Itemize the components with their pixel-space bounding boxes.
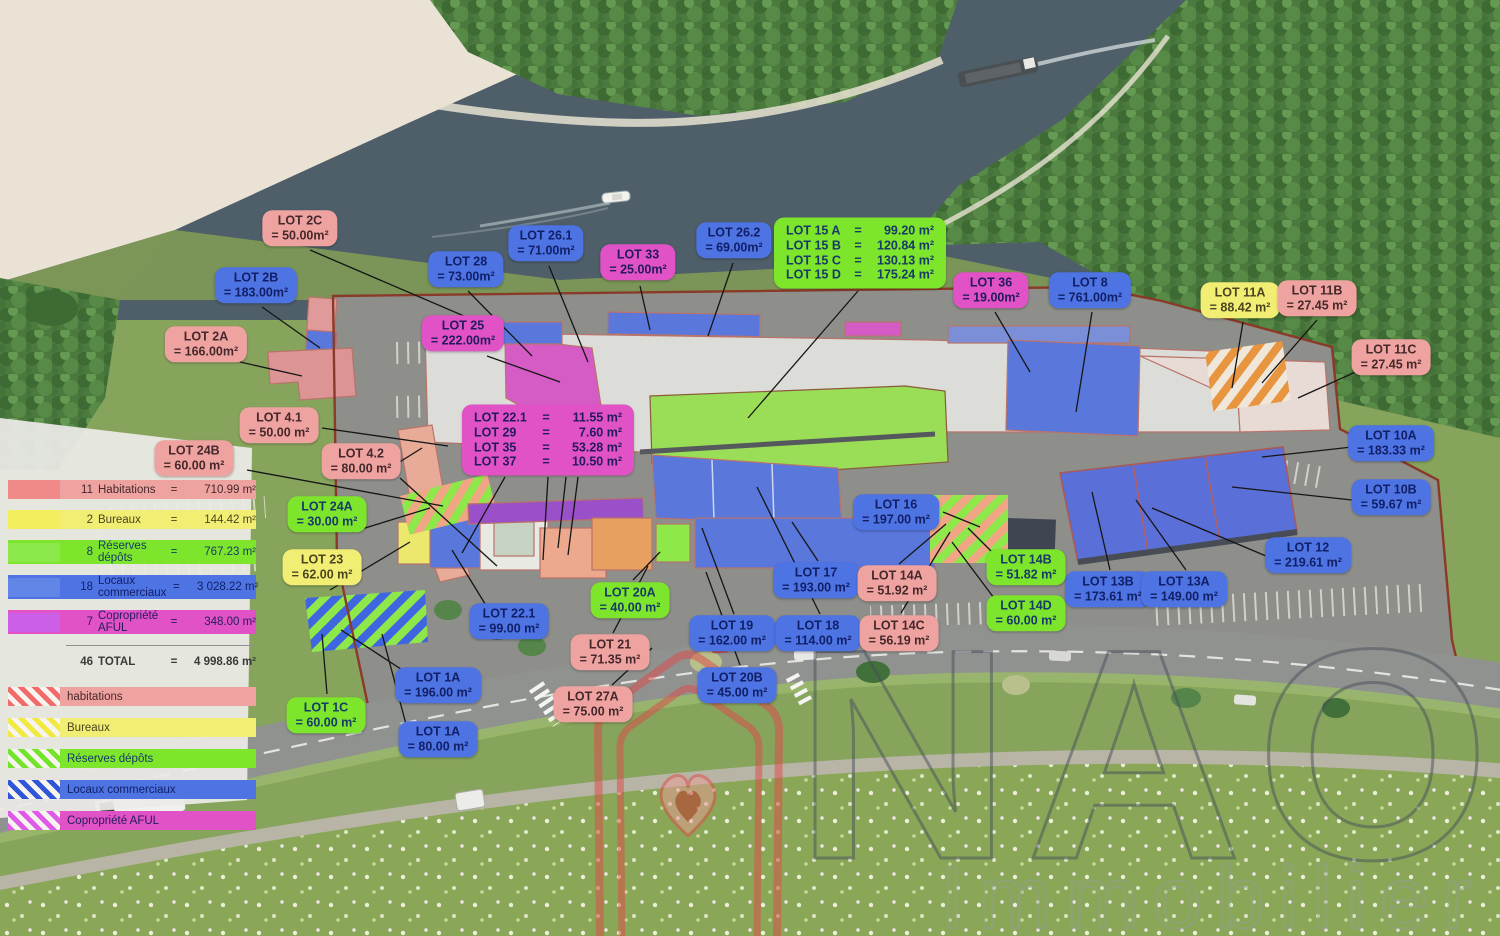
- lot-area: = 75.00 m²: [563, 704, 624, 719]
- lot-area: = 25.00m²: [609, 262, 666, 277]
- legend-row: 8 Réserves dépôts = 767.23 m²: [8, 540, 256, 564]
- lot-label-14a: LOT 14A = 51.92 m²: [858, 565, 937, 601]
- lot-name: LOT 13B: [1074, 574, 1142, 589]
- legend-label: Locaux commerciaux: [98, 575, 166, 599]
- lot-area: = 173.61 m²: [1074, 589, 1142, 604]
- lot-area: = 196.00 m²: [404, 685, 472, 700]
- lot-area: = 73.00m²: [437, 269, 494, 284]
- legend-label: Habitations: [98, 484, 164, 496]
- lot-label-36: LOT 36 = 19.00m²: [953, 272, 1028, 308]
- lot-label-20b: LOT 20B = 45.00 m²: [698, 667, 777, 703]
- lot-area: = 30.00 m²: [297, 514, 358, 529]
- legend-count: 8: [67, 546, 93, 558]
- lot-area: = 27.45 m²: [1361, 357, 1422, 372]
- legend-equals: =: [169, 546, 179, 558]
- lot-15c-row: LOT 15 C=130.13 m²: [786, 253, 934, 268]
- lot-area: = 114.00 m²: [784, 633, 851, 648]
- lot-label-11c: LOT 11C = 27.45 m²: [1352, 339, 1431, 375]
- lot-area: = 222.00m²: [431, 333, 495, 348]
- lot-name: LOT 14B: [996, 552, 1057, 567]
- legend-row: 7 Copropriété AFUL = 348.00 m²: [8, 610, 256, 634]
- lot-label-12: LOT 12 = 219.61 m²: [1265, 537, 1351, 573]
- legend-color-swatch: [8, 543, 60, 562]
- lot-label-4-2: LOT 4.2 = 80.00 m²: [322, 443, 401, 479]
- lot-15a-row: LOT 15 A=99.20 m²: [786, 224, 934, 239]
- lot-15d-row: LOT 15 D=175.24 m²: [786, 268, 934, 283]
- lot-label-8: LOT 8 = 761.00m²: [1049, 272, 1131, 308]
- site-plan-page: NAOS Immobilier 11 Habitat: [0, 0, 1500, 936]
- lot-15b-row: LOT 15 B=120.84 m²: [786, 238, 934, 253]
- lot-area: = 62.00 m²: [292, 567, 353, 582]
- lot-name: LOT 2B: [224, 270, 288, 285]
- lot-name: LOT 13A: [1150, 574, 1218, 589]
- lot-name: LOT 1A: [408, 724, 469, 739]
- lot-name: LOT 26.2: [705, 225, 762, 240]
- lot-22-row: LOT 22.1=11.55 m²: [474, 411, 622, 426]
- legend-hatch-swatch: [8, 749, 60, 768]
- legend-hatch-label: Réserves dépôts: [67, 753, 256, 765]
- lot-area: = 71.00m²: [517, 243, 574, 258]
- lot-name: LOT 14C: [869, 618, 930, 633]
- lot-area: = 149.00 m²: [1150, 589, 1218, 604]
- lot-label-16: LOT 16 = 197.00 m²: [853, 494, 939, 530]
- lot-label-21: LOT 21 = 71.35 m²: [571, 634, 650, 670]
- legend-panel: 11 Habitations = 710.99 m² 2 Bureaux = 1…: [8, 480, 256, 842]
- legend-equals: =: [169, 514, 179, 526]
- lot-29-row: LOT 29=7.60 m²: [474, 425, 622, 440]
- lot-label-23: LOT 23 = 62.00 m²: [283, 549, 362, 585]
- lot-label-26-1: LOT 26.1 = 71.00m²: [508, 225, 583, 261]
- lot-name: LOT 20A: [600, 585, 661, 600]
- lot-area: = 51.82 m²: [996, 567, 1057, 582]
- lot-label-18: LOT 18 = 114.00 m²: [775, 615, 860, 651]
- lot-area: = 51.92 m²: [867, 583, 928, 598]
- legend-count: 7: [67, 616, 93, 628]
- lot-name: LOT 26.1: [517, 228, 574, 243]
- lot-35-row: LOT 35=53.28 m²: [474, 440, 622, 455]
- legend-hatch-swatch: [8, 687, 60, 706]
- lot-area: = 88.42 m²: [1210, 300, 1271, 315]
- legend-hatch-row: Copropriété AFUL: [8, 811, 256, 830]
- lot-label-2a: LOT 2A = 166.00m²: [165, 326, 247, 362]
- lot-area: = 27.45 m²: [1287, 298, 1348, 313]
- lot-label-2b: LOT 2B = 183.00m²: [215, 267, 297, 303]
- legend-value: 348.00 m²: [184, 616, 256, 628]
- lot-name: LOT 14A: [867, 568, 928, 583]
- lot-label-4-1: LOT 4.1 = 50.00 m²: [240, 407, 319, 443]
- legend-color-swatch: [8, 480, 60, 499]
- legend-hatch-list: habitations Bureaux Réserves dépôts Loca…: [8, 687, 256, 830]
- lot-label-20a: LOT 20A = 40.00 m²: [591, 582, 670, 618]
- legend-hatch-label: Copropriété AFUL: [67, 815, 256, 827]
- legend-value: 710.99 m²: [184, 484, 256, 496]
- lot-name: LOT 27A: [563, 689, 624, 704]
- legend-hatch-label: Bureaux: [67, 722, 256, 734]
- lot-label-14c: LOT 14C = 56.19 m²: [860, 615, 939, 651]
- lot-name: LOT 2C: [271, 213, 328, 228]
- lot-area: = 59.67 m²: [1361, 497, 1422, 512]
- lot-area: = 60.00 m²: [296, 715, 357, 730]
- lot-name: LOT 8: [1058, 275, 1122, 290]
- lot-name: LOT 1C: [296, 700, 357, 715]
- lot-area: = 162.00 m²: [698, 633, 766, 648]
- lot-name: LOT 10B: [1361, 482, 1422, 497]
- legend-label: Copropriété AFUL: [98, 610, 164, 634]
- lot-name: LOT 18: [784, 618, 851, 633]
- lot-label-11b: LOT 11B = 27.45 m²: [1278, 280, 1357, 316]
- lot-name: LOT 24A: [297, 499, 358, 514]
- lot-label-10a: LOT 10A = 183.33 m²: [1348, 425, 1434, 461]
- legend-label: Réserves dépôts: [98, 540, 164, 564]
- legend-separator: [66, 645, 256, 646]
- lot-name: LOT 19: [698, 618, 766, 633]
- legend-count: 18: [67, 581, 93, 593]
- lot-area: = 99.00 m²: [479, 621, 540, 636]
- legend-total-value: 4 998.86 m²: [184, 656, 256, 668]
- lot-area: = 60.00 m²: [164, 458, 225, 473]
- legend-value: 144.42 m²: [184, 514, 256, 526]
- legend-count: 2: [67, 514, 93, 526]
- lot-name: LOT 11A: [1210, 285, 1271, 300]
- legend-value: 3 028.22 m²: [186, 581, 258, 593]
- lot-area: = 45.00 m²: [707, 685, 768, 700]
- legend-row: 2 Bureaux = 144.42 m²: [8, 510, 256, 529]
- legend-hatch-row: Locaux commerciaux: [8, 780, 256, 799]
- label-lot-22-group: LOT 22.1=11.55 m² LOT 29=7.60 m² LOT 35=…: [462, 405, 634, 476]
- lot-name: LOT 25: [431, 318, 495, 333]
- lot-area: = 183.33 m²: [1357, 443, 1425, 458]
- lot-label-24b: LOT 24B = 60.00 m²: [155, 440, 234, 476]
- lot-label-14b: LOT 14B = 51.82 m²: [987, 549, 1066, 585]
- legend-hatch-swatch: [8, 718, 60, 737]
- legend-category-list: 11 Habitations = 710.99 m² 2 Bureaux = 1…: [8, 480, 256, 634]
- lot-area: = 71.35 m²: [580, 652, 641, 667]
- legend-hatch-label: Locaux commerciaux: [67, 784, 256, 796]
- lot-label-11a: LOT 11A = 88.42 m²: [1201, 282, 1280, 318]
- lot-area: = 40.00 m²: [600, 600, 661, 615]
- lot-name: LOT 24B: [164, 443, 225, 458]
- lot-area: = 60.00 m²: [996, 613, 1057, 628]
- legend-hatch-row: Bureaux: [8, 718, 256, 737]
- legend-color-swatch: [8, 613, 60, 632]
- lot-area: = 761.00m²: [1058, 290, 1122, 305]
- lot-name: LOT 11C: [1361, 342, 1422, 357]
- lot-name: LOT 17: [782, 565, 850, 580]
- lot-label-25: LOT 25 = 222.00m²: [422, 315, 504, 351]
- legend-total-count: 46: [67, 656, 93, 668]
- lot-label-33: LOT 33 = 25.00m²: [600, 244, 675, 280]
- legend-row: 11 Habitations = 710.99 m²: [8, 480, 256, 499]
- lot-label-1a-80: LOT 1A = 80.00 m²: [399, 721, 478, 757]
- legend-hatch-row: habitations: [8, 687, 256, 706]
- legend-equals: =: [169, 484, 179, 496]
- lot-name: LOT 11B: [1287, 283, 1348, 298]
- lot-label-24a: LOT 24A = 30.00 m²: [288, 496, 367, 532]
- legend-row: 18 Locaux commerciaux = 3 028.22 m²: [8, 575, 256, 599]
- lot-name: LOT 16: [862, 497, 930, 512]
- lot-area: = 69.00m²: [705, 240, 762, 255]
- label-lot-15-group: LOT 15 A=99.20 m² LOT 15 B=120.84 m² LOT…: [774, 218, 946, 289]
- legend-hatch-row: Réserves dépôts: [8, 749, 256, 768]
- legend-hatch-label: habitations: [67, 691, 256, 703]
- lot-name: LOT 20B: [707, 670, 768, 685]
- legend-color-swatch: [8, 578, 60, 597]
- lot-area: = 50.00 m²: [249, 425, 310, 440]
- lot-area: = 183.00m²: [224, 285, 288, 300]
- lot-name: LOT 28: [437, 254, 494, 269]
- lot-label-26-2: LOT 26.2 = 69.00m²: [696, 222, 771, 258]
- lot-area: = 80.00 m²: [331, 461, 392, 476]
- lot-area: = 219.61 m²: [1274, 555, 1342, 570]
- lot-label-10b: LOT 10B = 59.67 m²: [1352, 479, 1431, 515]
- legend-total-equals: =: [169, 656, 179, 668]
- legend-total-label: TOTAL: [98, 656, 164, 668]
- lot-name: LOT 1A: [404, 670, 472, 685]
- legend-label: Bureaux: [98, 514, 164, 526]
- lot-name: LOT 4.2: [331, 446, 392, 461]
- lot-name: LOT 33: [609, 247, 666, 262]
- legend-value: 767.23 m²: [184, 546, 256, 558]
- legend-equals: =: [169, 616, 179, 628]
- lot-name: LOT 21: [580, 637, 641, 652]
- lot-area: = 56.19 m²: [869, 633, 930, 648]
- legend-color-swatch: [8, 510, 60, 529]
- lot-area: = 193.00 m²: [782, 580, 850, 595]
- legend-hatch-swatch: [8, 780, 60, 799]
- lot-name: LOT 4.1: [249, 410, 310, 425]
- lot-label-19: LOT 19 = 162.00 m²: [689, 615, 775, 651]
- watermark-subtitle: Immobilier: [940, 848, 1486, 936]
- lot-label-17: LOT 17 = 193.00 m²: [773, 562, 859, 598]
- lot-label-13b: LOT 13B = 173.61 m²: [1065, 571, 1151, 607]
- lot-label-27a: LOT 27A = 75.00 m²: [554, 686, 633, 722]
- legend-equals: =: [171, 581, 181, 593]
- legend-count: 11: [67, 484, 93, 496]
- lot-label-1a-196: LOT 1A = 196.00 m²: [395, 667, 481, 703]
- lot-area: = 197.00 m²: [862, 512, 930, 527]
- lot-label-14d: LOT 14D = 60.00 m²: [987, 595, 1066, 631]
- lot-area: = 50.00m²: [271, 228, 328, 243]
- lot-name: LOT 12: [1274, 540, 1342, 555]
- legend-total-row: 46 TOTAL = 4 998.86 m²: [8, 652, 256, 671]
- lot-name: LOT 22.1: [479, 606, 540, 621]
- lot-37-row: LOT 37=10.50 m²: [474, 455, 622, 470]
- legend-hatch-swatch: [8, 811, 60, 830]
- lot-label-28: LOT 28 = 73.00m²: [428, 251, 503, 287]
- lot-name: LOT 2A: [174, 329, 238, 344]
- lot-name: LOT 36: [962, 275, 1019, 290]
- lot-area: = 19.00m²: [962, 290, 1019, 305]
- lot-label-22-1: LOT 22.1 = 99.00 m²: [470, 603, 549, 639]
- lot-label-1c: LOT 1C = 60.00 m²: [287, 697, 366, 733]
- lot-label-13a: LOT 13A = 149.00 m²: [1141, 571, 1227, 607]
- lot-area: = 166.00m²: [174, 344, 238, 359]
- lot-name: LOT 10A: [1357, 428, 1425, 443]
- lot-name: LOT 14D: [996, 598, 1057, 613]
- lot-name: LOT 23: [292, 552, 353, 567]
- lot-label-2c: LOT 2C = 50.00m²: [262, 210, 337, 246]
- lot-area: = 80.00 m²: [408, 739, 469, 754]
